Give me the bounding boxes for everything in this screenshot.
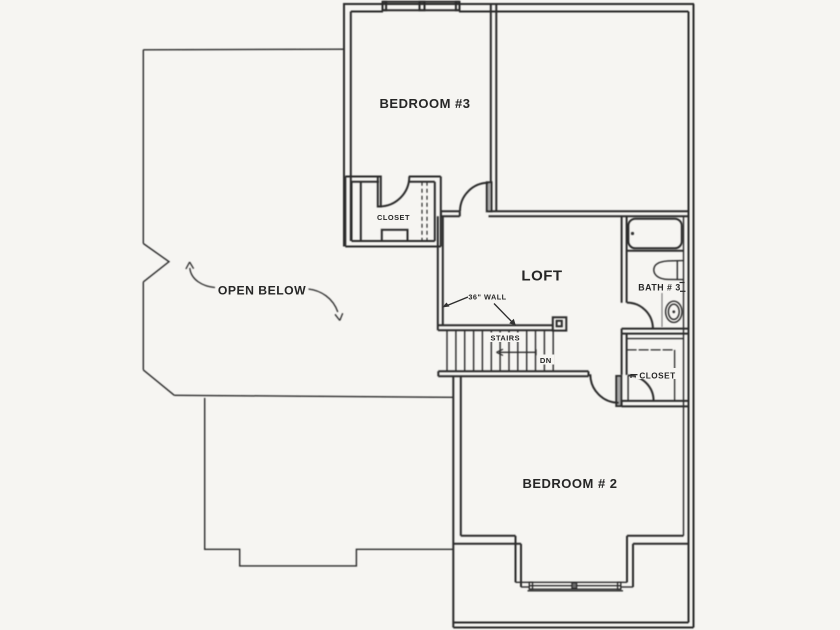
svg-text:DN: DN xyxy=(540,356,552,365)
svg-text:BEDROOM #3: BEDROOM #3 xyxy=(380,96,471,111)
svg-text:BATH # 3: BATH # 3 xyxy=(638,283,680,293)
svg-text:LOFT: LOFT xyxy=(521,268,562,285)
svg-text:OPEN BELOW: OPEN BELOW xyxy=(218,284,306,298)
svg-text:CLOSET: CLOSET xyxy=(639,372,675,381)
svg-text:BEDROOM # 2: BEDROOM # 2 xyxy=(522,476,617,491)
svg-text:STAIRS: STAIRS xyxy=(491,333,521,342)
svg-text:36" WALL: 36" WALL xyxy=(468,293,506,302)
svg-text:CLOSET: CLOSET xyxy=(377,213,410,222)
